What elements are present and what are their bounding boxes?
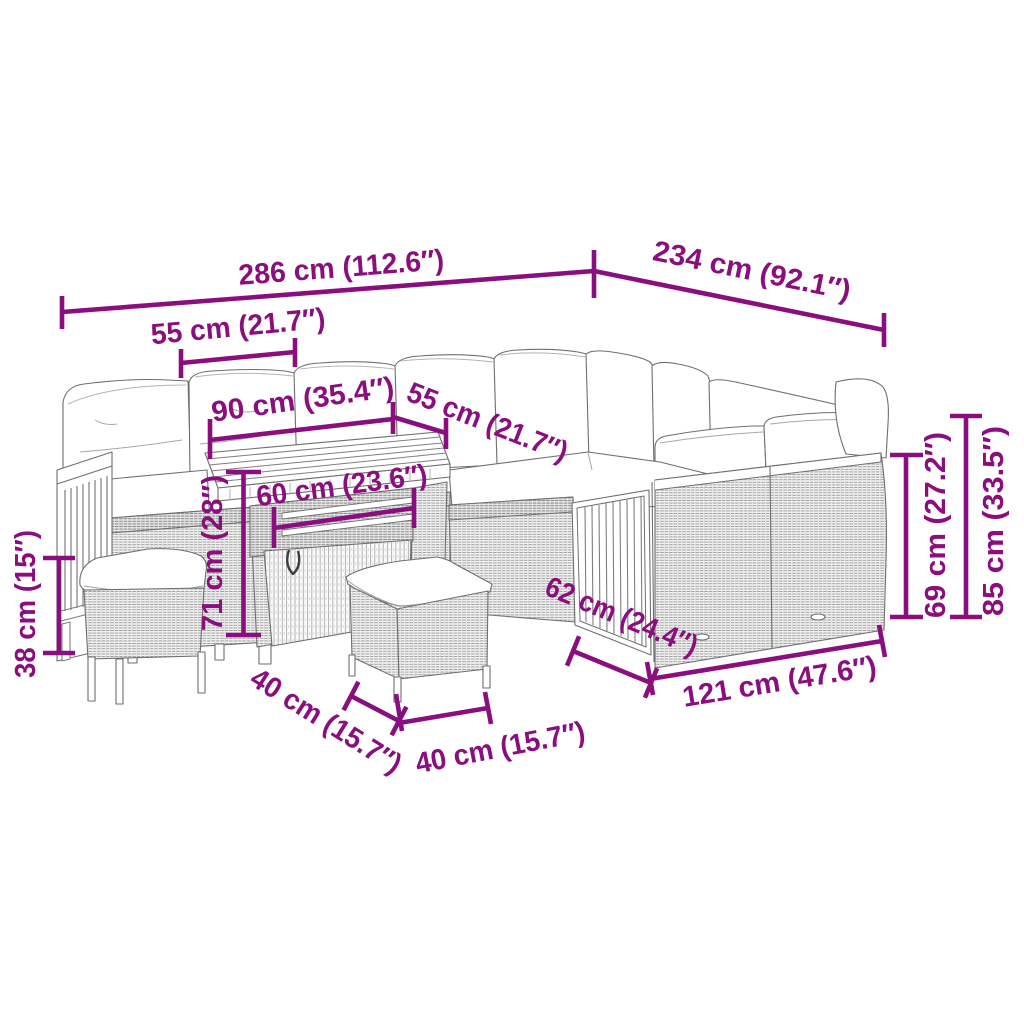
svg-text:38 cm (15″): 38 cm (15″) <box>10 530 42 678</box>
svg-text:71 cm (28″): 71 cm (28″) <box>197 475 229 631</box>
svg-text:69 cm (27.2″): 69 cm (27.2″) <box>920 432 952 618</box>
svg-text:85 cm (33.5″): 85 cm (33.5″) <box>978 426 1010 616</box>
